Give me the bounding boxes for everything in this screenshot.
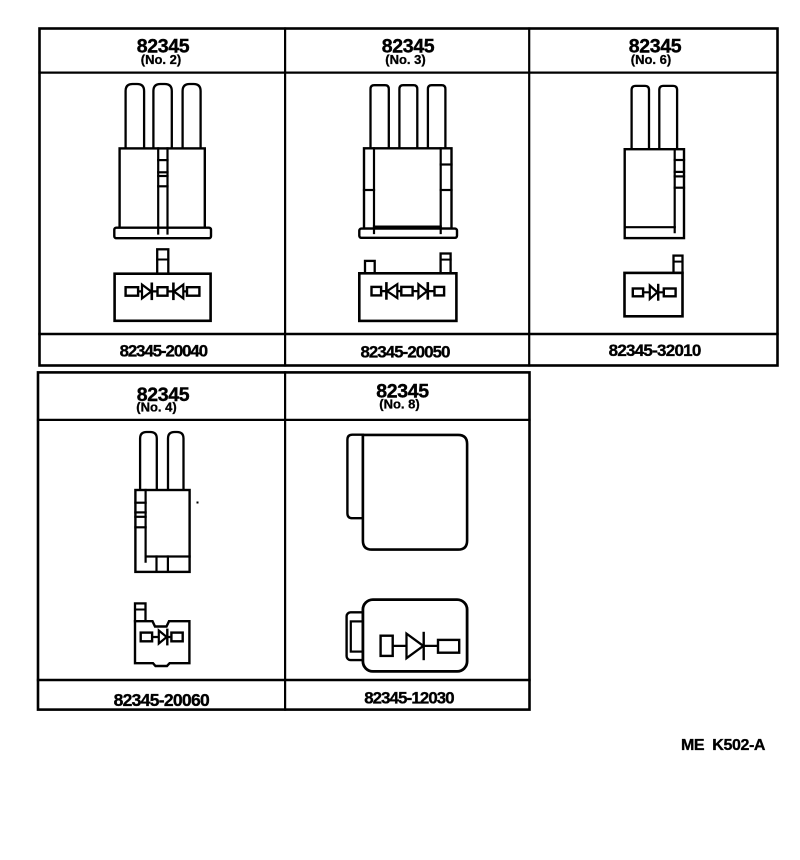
- svg-text:(No. 4): (No. 4): [136, 399, 176, 414]
- svg-text:82345-32010: 82345-32010: [609, 341, 701, 360]
- svg-text:82345-12030: 82345-12030: [364, 688, 454, 707]
- svg-text:(No. 6): (No. 6): [631, 52, 671, 67]
- svg-text:82345-20050: 82345-20050: [360, 342, 450, 361]
- svg-text:(No. 8): (No. 8): [379, 397, 419, 412]
- svg-text:82345-20040: 82345-20040: [120, 342, 208, 361]
- svg-text:(No. 2): (No. 2): [141, 52, 181, 67]
- svg-text:(No. 3): (No. 3): [385, 52, 425, 67]
- svg-text:ME K502-A: ME K502-A: [681, 737, 766, 754]
- svg-text:82345-20060: 82345-20060: [114, 690, 210, 710]
